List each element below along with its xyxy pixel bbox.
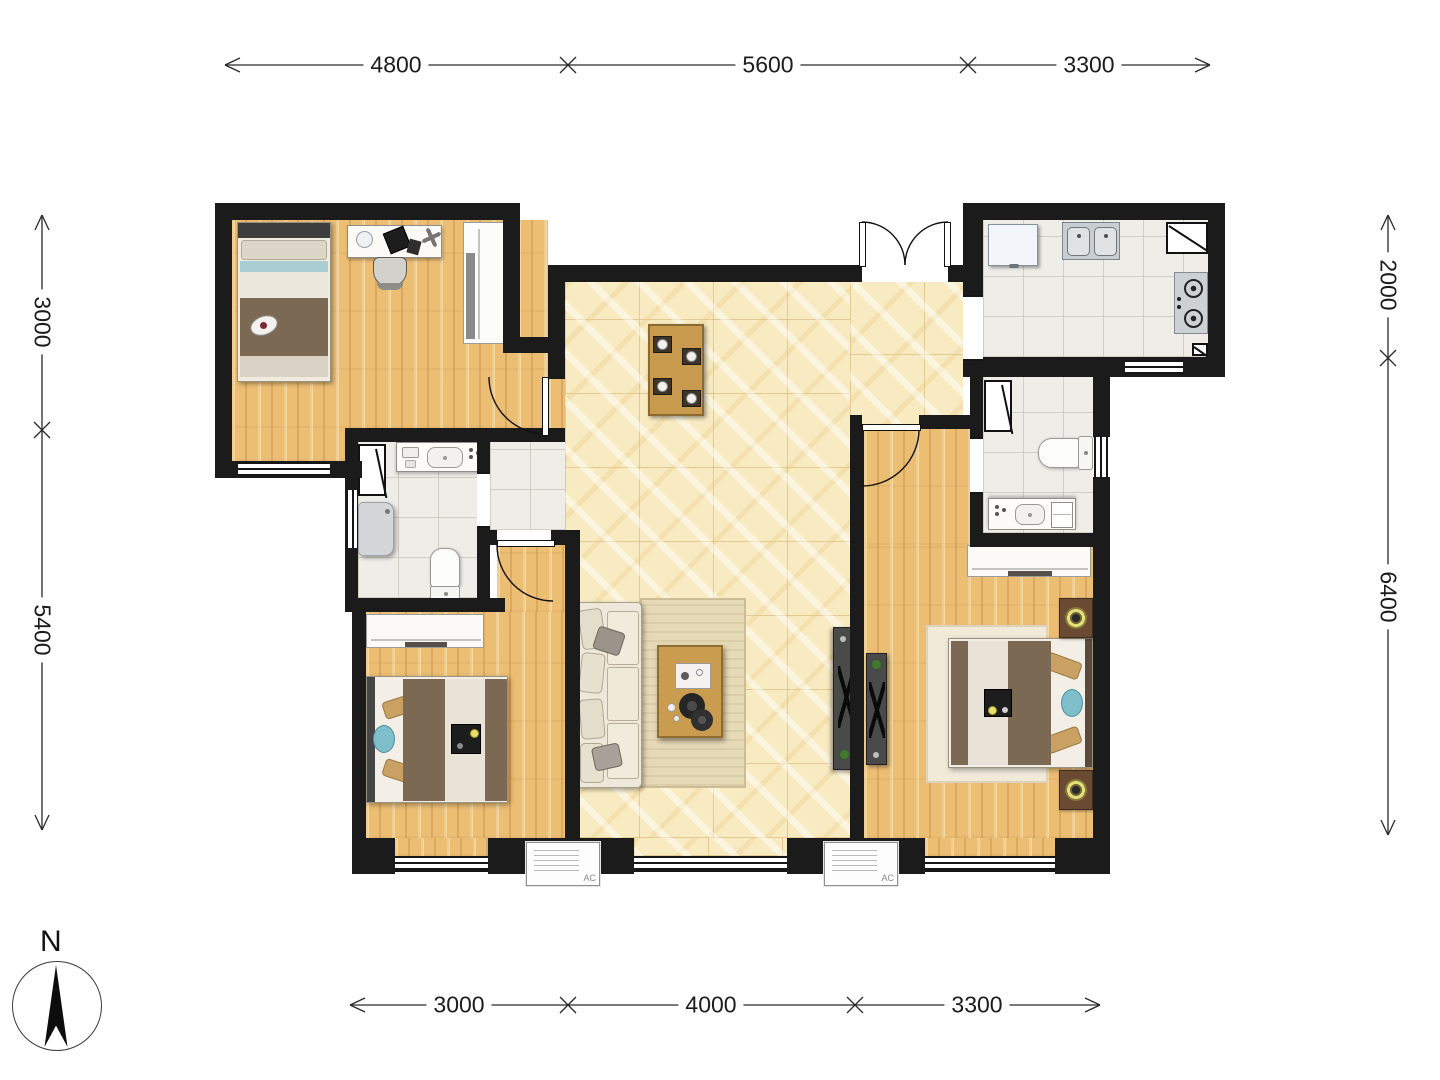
wall [963,357,1225,377]
entry-door-right-arc [905,222,948,265]
bathroom-left-door-opening [477,472,490,528]
tray-cup [681,672,689,680]
wall [963,203,1225,220]
dim-ticks-left [34,422,50,438]
study-bed-duvet [240,298,328,356]
dim-label-left-2: 5400 [29,597,56,662]
living-window-bay-floor [634,838,787,856]
tray-dot [1002,707,1008,713]
placemat [682,390,701,407]
wall [850,429,864,838]
lamp-icon [1065,607,1087,629]
flue-diagonal-line [1168,225,1208,252]
stove-knob [1177,297,1181,301]
plate-icon [686,393,697,404]
study-wardrobe-door-panel [466,253,475,339]
vanity-left [396,442,486,472]
kitchen-corner-flue [1166,222,1208,254]
vanity-drain-dot [443,456,447,460]
wardrobe-rod [405,642,447,647]
entry-door-right-leaf [944,222,951,267]
entry-hall-floor [850,282,963,429]
study-bed-headboard [238,223,330,238]
study-bed-teal-stripe [240,261,328,272]
bedroom-right-floor-upper [864,429,970,545]
lamp-icon [1065,779,1087,801]
dim-label-top-1: 4800 [363,52,428,79]
wall [948,265,963,282]
bedroom-right-door-leaf [862,424,921,431]
window [346,490,357,548]
wall [345,428,565,442]
study-desk [347,225,442,258]
toilet-tank [1078,436,1093,470]
study-bedroom-floor-lower [232,428,345,461]
stove [1174,272,1208,334]
wardrobe-inner-line [972,568,1088,570]
console-plant-icon [872,660,881,669]
dim-label-top-2: 5600 [735,52,800,79]
window [634,856,787,872]
placemat [653,336,672,353]
dim-label-bottom-1: 3000 [426,992,491,1019]
shower-left [358,444,386,496]
table-dot [673,715,680,722]
ac-label: AC [583,873,596,883]
study-door-threshold [548,379,565,434]
toilet-bowl [1038,438,1080,468]
desk-plant-icon [422,228,441,247]
study-bed-foot [240,356,328,377]
window [1094,437,1108,477]
toilet-flush-dot [1084,451,1088,455]
wall [352,838,395,874]
wall [1208,203,1225,377]
study-bed-deco-dot [260,322,267,329]
stove-burner [1184,309,1203,328]
wall [503,203,520,353]
toilet-bowl [430,548,460,588]
wardrobe-rod [1008,571,1052,576]
ac-label: AC [881,873,894,883]
cabinet-shelf-line [1053,514,1071,515]
bed-tray [451,724,481,754]
plate-icon [657,381,668,392]
dim-label-bottom-2: 4000 [678,992,743,1019]
dining-table [648,324,704,416]
window [238,462,330,476]
window [395,856,488,872]
ac-vents [832,849,877,871]
wall [215,203,232,478]
study-wardrobe-rail [478,229,480,339]
tray-dot [457,743,463,749]
wall [548,265,862,282]
window [925,856,1055,872]
desk-lamp [356,231,373,248]
console-deco-dot [840,636,846,642]
coffee-table [657,645,723,738]
wall [1093,477,1110,533]
tv-icon [869,682,885,738]
sofa-back-cushion [578,652,606,694]
bed-round-pillow [373,725,395,753]
wall [215,203,520,220]
sink-drain-dot [1104,234,1108,238]
study-bed [237,222,331,382]
wall [565,530,580,838]
toilet-right [1038,436,1094,470]
bedroom-right-bed [948,638,1093,768]
bed-round-pillow [1061,689,1083,717]
bed-duvet [951,641,1051,765]
vanity-soap [405,460,416,468]
kitchen-door-opening [963,295,983,361]
dim-label-right-1: 2000 [1375,252,1402,317]
bedroom-left-wardrobe [366,614,484,648]
sofa-back-cushion [578,698,605,740]
kitchen-sink [1062,222,1120,260]
bed-tray [984,689,1012,717]
plate-icon [686,351,697,362]
console-deco-dot [873,752,879,758]
bedroom-left-bay-floor [395,838,488,856]
tray-candle-dot [470,729,479,738]
ac-unit-2: AC [824,842,898,886]
sink-drain-dot [1077,234,1081,238]
tv-console-bedroom [866,653,887,765]
bed-headboard [1085,639,1092,767]
dim-label-right-2: 6400 [1375,564,1402,629]
shower-door-line [1001,385,1013,434]
bathroom-right-door-opening [970,437,983,494]
wall [352,612,366,838]
wall [1093,377,1110,437]
placemat [653,378,672,395]
bedroom-left-bed [366,676,508,803]
bedroom-left-door-nook-floor [497,545,565,612]
bedroom-left-door-leaf [497,540,555,547]
vanity-right [988,498,1076,530]
stove-knob [1177,305,1181,309]
wall [919,415,973,429]
study-chair-back [377,283,403,290]
wall [963,203,983,295]
vanity-sink [427,447,463,468]
vanity-faucet-dots [995,505,999,509]
entry-door-left-leaf [859,222,866,267]
dim-label-bottom-3: 3300 [944,992,1009,1019]
tray-candle-dot [988,706,997,715]
desk-notebook [406,239,421,256]
wall [548,265,565,379]
nightstand-top [1059,598,1093,638]
console-plant-icon [840,750,849,759]
study-bed-pillow [241,240,327,260]
bed-duvet [403,679,507,801]
plate-icon [657,339,668,350]
fridge [988,224,1038,266]
dim-ticks-right [1380,350,1396,366]
washing-machine [358,502,394,556]
coffee-table-tray [675,663,711,689]
bedroom-right-wardrobe [967,545,1091,577]
placemat [682,348,701,365]
sink-bowl [1067,227,1090,256]
wall [490,530,497,545]
vanity-soapdish [402,447,419,458]
study-bed-fold [240,272,328,298]
sink-bowl [1094,227,1117,256]
vanity-faucet-dots [469,448,473,452]
table-bowl-small [691,709,713,731]
shower-door-line [375,449,387,498]
wall [850,415,862,429]
bath-hall-nook-floor [490,442,565,530]
fridge-handle [1009,264,1019,268]
vanity-drain-dot [1028,513,1032,517]
wall [477,442,490,472]
toilet-left [428,548,462,602]
wall [970,533,1110,547]
study-wardrobe [463,222,505,344]
vanity-sink [1015,504,1045,525]
kitchen-floor-drain [1192,343,1208,356]
wardrobe-inner-line [371,639,481,641]
shower-right [984,380,1012,432]
stove-burner [1184,279,1203,298]
compass: N [10,925,110,1060]
toilet-flush-dot [444,592,448,596]
dim-label-left-1: 3000 [29,289,56,354]
entry-door-left-arc [862,222,905,265]
dim-label-top-3: 3300 [1056,52,1121,79]
vanity-cabinet [1051,502,1073,528]
sofa [576,602,642,788]
ac-vents [534,849,579,871]
study-chair [371,257,409,291]
bedroom-right-bay-floor [925,838,1055,856]
wall [1093,533,1110,874]
tray-cup [696,669,703,676]
table-dot [667,703,676,712]
compass-north-label: N [40,925,62,959]
wall [345,598,505,612]
wall [1055,838,1110,874]
drain-diagonal-line [1193,346,1208,357]
floor-plan-canvas: AC AC [0,0,1440,1080]
window [1125,360,1183,374]
washer-dot [385,509,390,514]
wall [970,490,983,533]
nightstand-bottom [1059,770,1093,810]
ac-unit-1: AC [526,842,600,886]
study-door-leaf [542,377,549,436]
sofa-seat-cushion [607,667,639,721]
